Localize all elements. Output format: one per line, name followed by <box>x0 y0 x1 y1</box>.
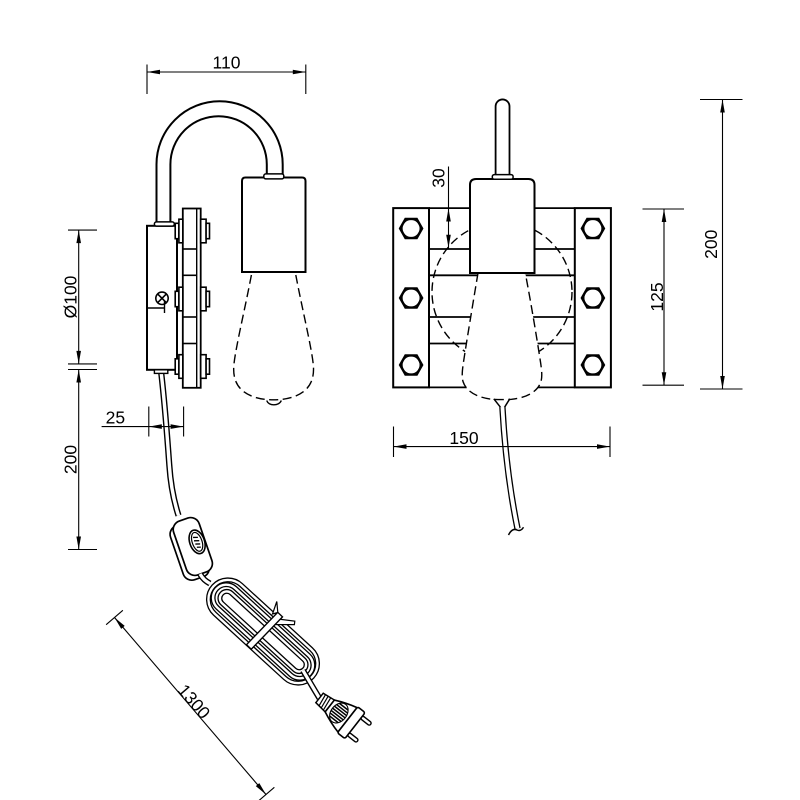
svg-text:200: 200 <box>701 229 721 258</box>
svg-text:25: 25 <box>106 408 125 428</box>
svg-text:125: 125 <box>647 282 667 311</box>
svg-text:200: 200 <box>61 445 81 474</box>
svg-text:30: 30 <box>429 168 449 188</box>
svg-text:150: 150 <box>449 428 478 448</box>
svg-text:110: 110 <box>213 53 241 73</box>
svg-text:Ø100: Ø100 <box>61 275 81 318</box>
